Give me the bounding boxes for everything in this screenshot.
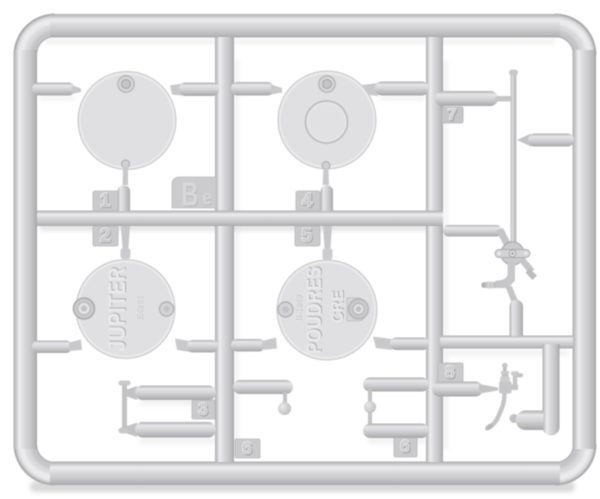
svg-text:1: 1 [100, 191, 111, 212]
svg-text:e: e [202, 187, 211, 210]
svg-text:POUDRES: POUDRES [303, 266, 326, 353]
svg-text:B: B [181, 177, 198, 214]
svg-text:JUPITER: JUPITER [103, 267, 131, 351]
svg-text:2: 2 [100, 226, 111, 247]
svg-text:B-1849: B-1849 [294, 295, 303, 322]
svg-text:7: 7 [448, 107, 457, 124]
svg-text:3: 3 [198, 399, 208, 419]
svg-text:8: 8 [445, 362, 455, 382]
svg-text:6: 6 [400, 436, 410, 456]
svg-text:5: 5 [302, 226, 313, 247]
svg-text:6: 6 [242, 438, 252, 458]
svg-text:4: 4 [302, 191, 313, 212]
svg-text:E4281: E4281 [134, 296, 144, 321]
svg-text:CRE: CRE [329, 290, 347, 323]
